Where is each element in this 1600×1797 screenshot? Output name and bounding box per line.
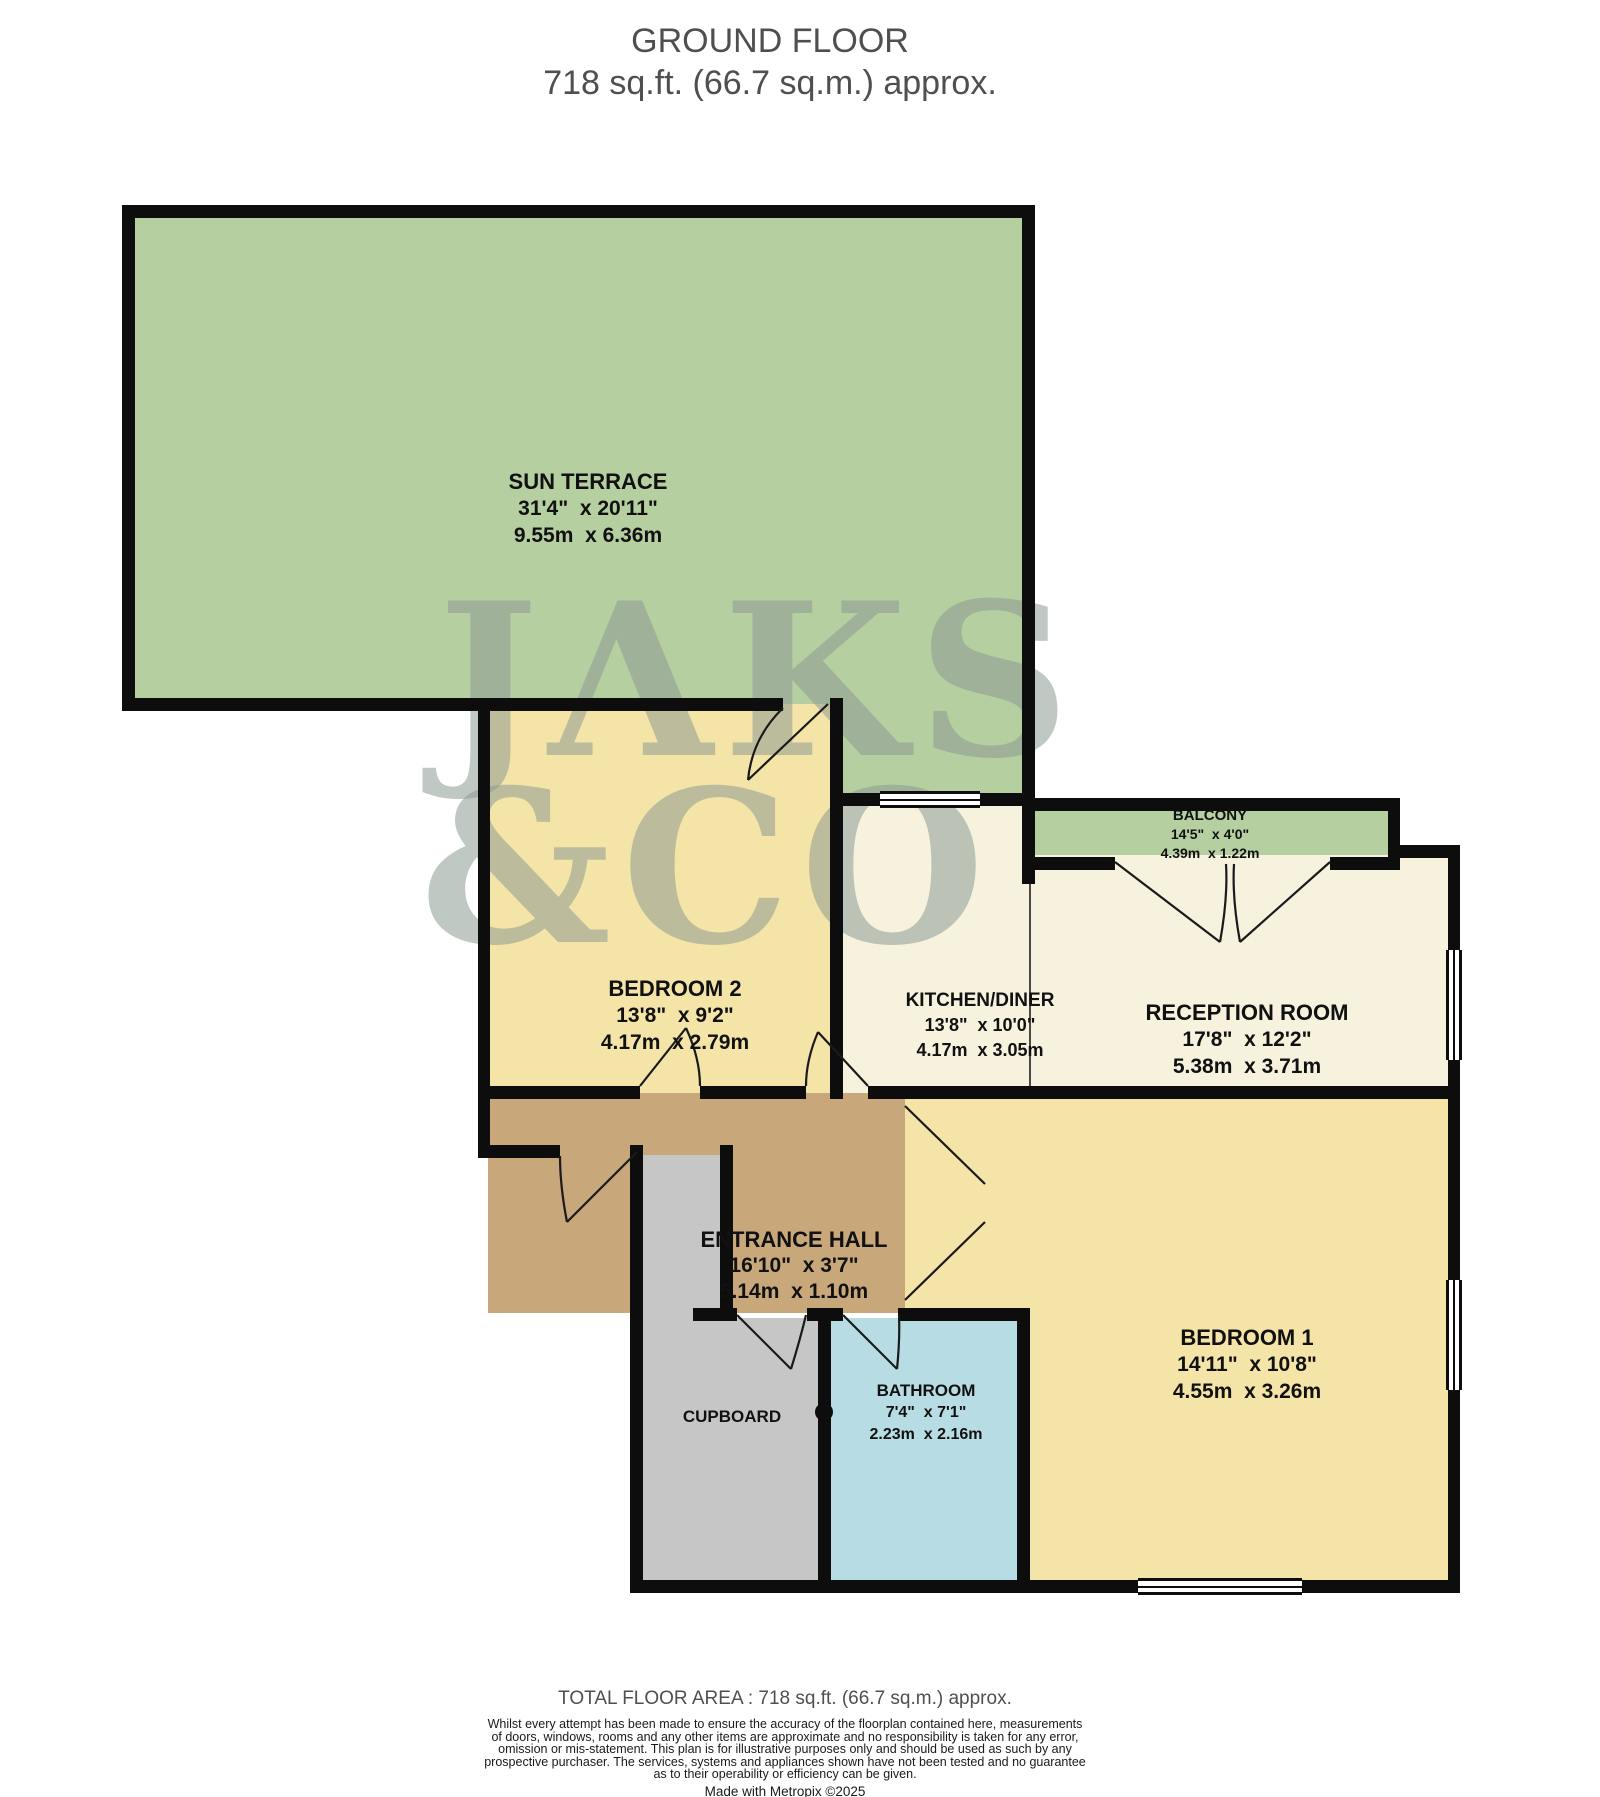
wall	[1022, 205, 1035, 884]
wall	[478, 1145, 560, 1158]
wall	[868, 1086, 1460, 1099]
wall	[1017, 1321, 1030, 1593]
wall	[122, 698, 783, 711]
total-floor-area: TOTAL FLOOR AREA : 718 sq.ft. (66.7 sq.m…	[0, 1688, 1570, 1710]
wall	[700, 1086, 806, 1099]
footer: TOTAL FLOOR AREA : 718 sq.ft. (66.7 sq.m…	[0, 1688, 1570, 1797]
page-title: GROUND FLOOR 718 sq.ft. (66.7 sq.m.) app…	[0, 20, 1540, 104]
floor-title: GROUND FLOOR	[0, 20, 1540, 62]
window	[1138, 1578, 1302, 1595]
label-cupboard: CUPBOARD	[632, 1406, 832, 1428]
room-name: BALCONY	[1060, 806, 1360, 825]
window	[1446, 1280, 1462, 1390]
wall	[898, 1308, 1030, 1321]
room-name: BATHROOM	[776, 1380, 1076, 1402]
floorplan-page: GROUND FLOOR 718 sq.ft. (66.7 sq.m.) app…	[0, 0, 1600, 1797]
label-balcony: BALCONY 14'5" x 4'0" 4.39m x 1.22m	[1060, 806, 1360, 863]
wall	[630, 1580, 1460, 1593]
label-reception: RECEPTION ROOM 17'8" x 12'2" 5.38m x 3.7…	[1047, 999, 1447, 1080]
wall	[807, 1308, 843, 1321]
room-size-imperial: 17'8" x 12'2"	[1047, 1026, 1447, 1053]
room-size-metric: 9.55m x 6.36m	[388, 522, 788, 549]
wall	[478, 1086, 640, 1099]
wall	[693, 1308, 737, 1321]
room-size-imperial: 16'10" x 3'7"	[594, 1253, 994, 1279]
room-name: BEDROOM 1	[1047, 1324, 1447, 1351]
label-entrance-hall: ENTRANCE HALL 16'10" x 3'7" 5.14m x 1.10…	[594, 1227, 994, 1305]
wall	[122, 205, 1035, 218]
room-bathroom	[828, 1318, 1020, 1583]
floor-area-subtitle: 718 sq.ft. (66.7 sq.m.) approx.	[0, 62, 1540, 104]
room-size-metric: 4.39m x 1.22m	[1060, 844, 1360, 863]
room-size-metric: 5.14m x 1.10m	[594, 1279, 994, 1305]
disclaimer-line: as to their operability or efficiency ca…	[0, 1768, 1570, 1781]
disclaimer-line: omission or mis-statement. This plan is …	[0, 1743, 1570, 1756]
disclaimer-line: Whilst every attempt has been made to en…	[0, 1718, 1570, 1731]
room-name: ENTRANCE HALL	[594, 1227, 994, 1253]
label-bedroom-1: BEDROOM 1 14'11" x 10'8" 4.55m x 3.26m	[1047, 1324, 1447, 1405]
window	[1446, 950, 1462, 1060]
room-size-imperial: 14'5" x 4'0"	[1060, 825, 1360, 844]
room-size-metric: 4.55m x 3.26m	[1047, 1378, 1447, 1405]
wall	[122, 205, 135, 711]
wall	[478, 698, 490, 1158]
window	[880, 791, 980, 808]
wall	[630, 1145, 643, 1593]
room-cupboard	[643, 1318, 821, 1583]
room-name: SUN TERRACE	[388, 468, 788, 495]
wall	[818, 1321, 831, 1593]
label-sun-terrace: SUN TERRACE 31'4" x 20'11" 9.55m x 6.36m	[388, 468, 788, 549]
room-name: RECEPTION ROOM	[1047, 999, 1447, 1026]
room-size-imperial: 14'11" x 10'8"	[1047, 1351, 1447, 1378]
room-name: CUPBOARD	[632, 1406, 832, 1428]
made-with-credit: Made with Metropix ©2025	[0, 1784, 1570, 1797]
room-size-imperial: 31'4" x 20'11"	[388, 495, 788, 522]
room-size-metric: 5.38m x 3.71m	[1047, 1053, 1447, 1080]
